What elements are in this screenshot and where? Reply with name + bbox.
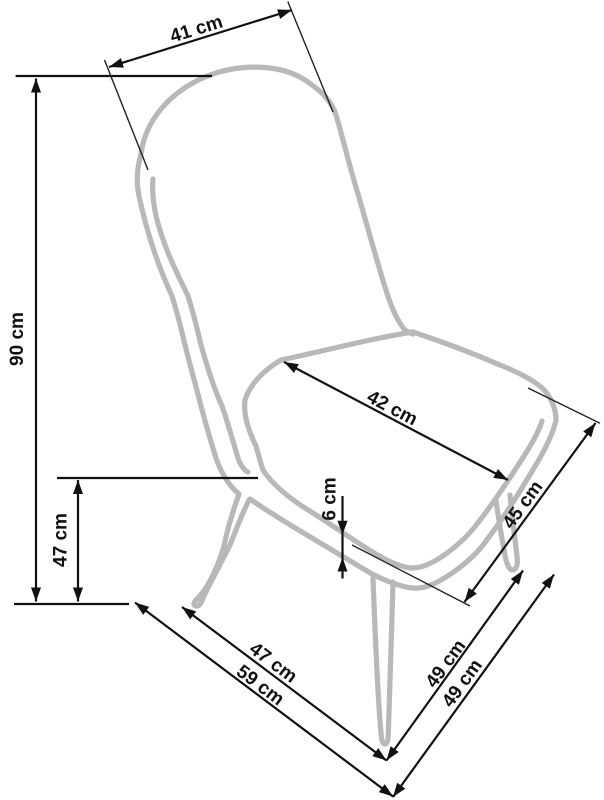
svg-text:90 cm: 90 cm xyxy=(7,312,28,366)
svg-text:41 cm: 41 cm xyxy=(168,11,226,47)
svg-text:6 cm: 6 cm xyxy=(320,477,341,520)
svg-text:42 cm: 42 cm xyxy=(363,387,420,431)
svg-text:47 cm: 47 cm xyxy=(51,513,72,567)
